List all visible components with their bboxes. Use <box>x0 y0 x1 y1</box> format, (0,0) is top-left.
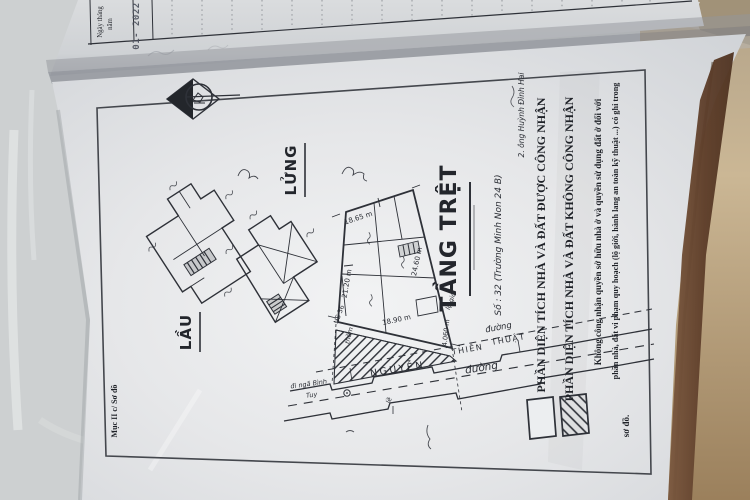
street-direction-note-2: Tuy <box>306 390 318 400</box>
legend-note-line2: phần nhà, đất vi phạm quy hoạch (lộ giới… <box>611 82 620 380</box>
legend-text-not-recognized: PHẦN DIỆN TÍCH NHÀ VÀ ĐẤT KHÔNG CÔNG NHẬ… <box>561 96 576 401</box>
photo-of-document: Ngày tháng năm 01- 2022 Mục II c/ Sơ đồ <box>0 0 750 500</box>
margin-label: Mục II c/ Sơ đồ <box>110 385 119 438</box>
owner-note: 2. ông Huỳnh Đình Hai <box>517 72 526 158</box>
tret-label: TẦNG TRỆT <box>433 164 462 311</box>
legend-note-line1: Không công nhận quyền sở hữu nhà ở và qu… <box>593 98 603 365</box>
legend-swatch-recognized <box>527 397 556 439</box>
legend-text-recognized: PHẦN DIỆN TÍCH NHÀ VÀ ĐẤT ĐƯỢC CÔNG NHẬN <box>533 97 548 392</box>
date-header-line2: năm <box>107 17 114 29</box>
date-stamp: 01- 2022 <box>132 2 142 49</box>
tret-note: Số : 32 (Trường Minh Non 24 B) <box>493 174 504 315</box>
date-header-line1: Ngày tháng <box>97 6 104 38</box>
photo-canvas: Ngày tháng năm 01- 2022 Mục II c/ Sơ đồ <box>0 0 750 500</box>
legend-note-line3: sơ đồ. <box>621 415 631 438</box>
floor-plan-lung-label: LỬNG <box>279 145 300 196</box>
floor-plan-lau-label: LẦU <box>174 314 195 350</box>
